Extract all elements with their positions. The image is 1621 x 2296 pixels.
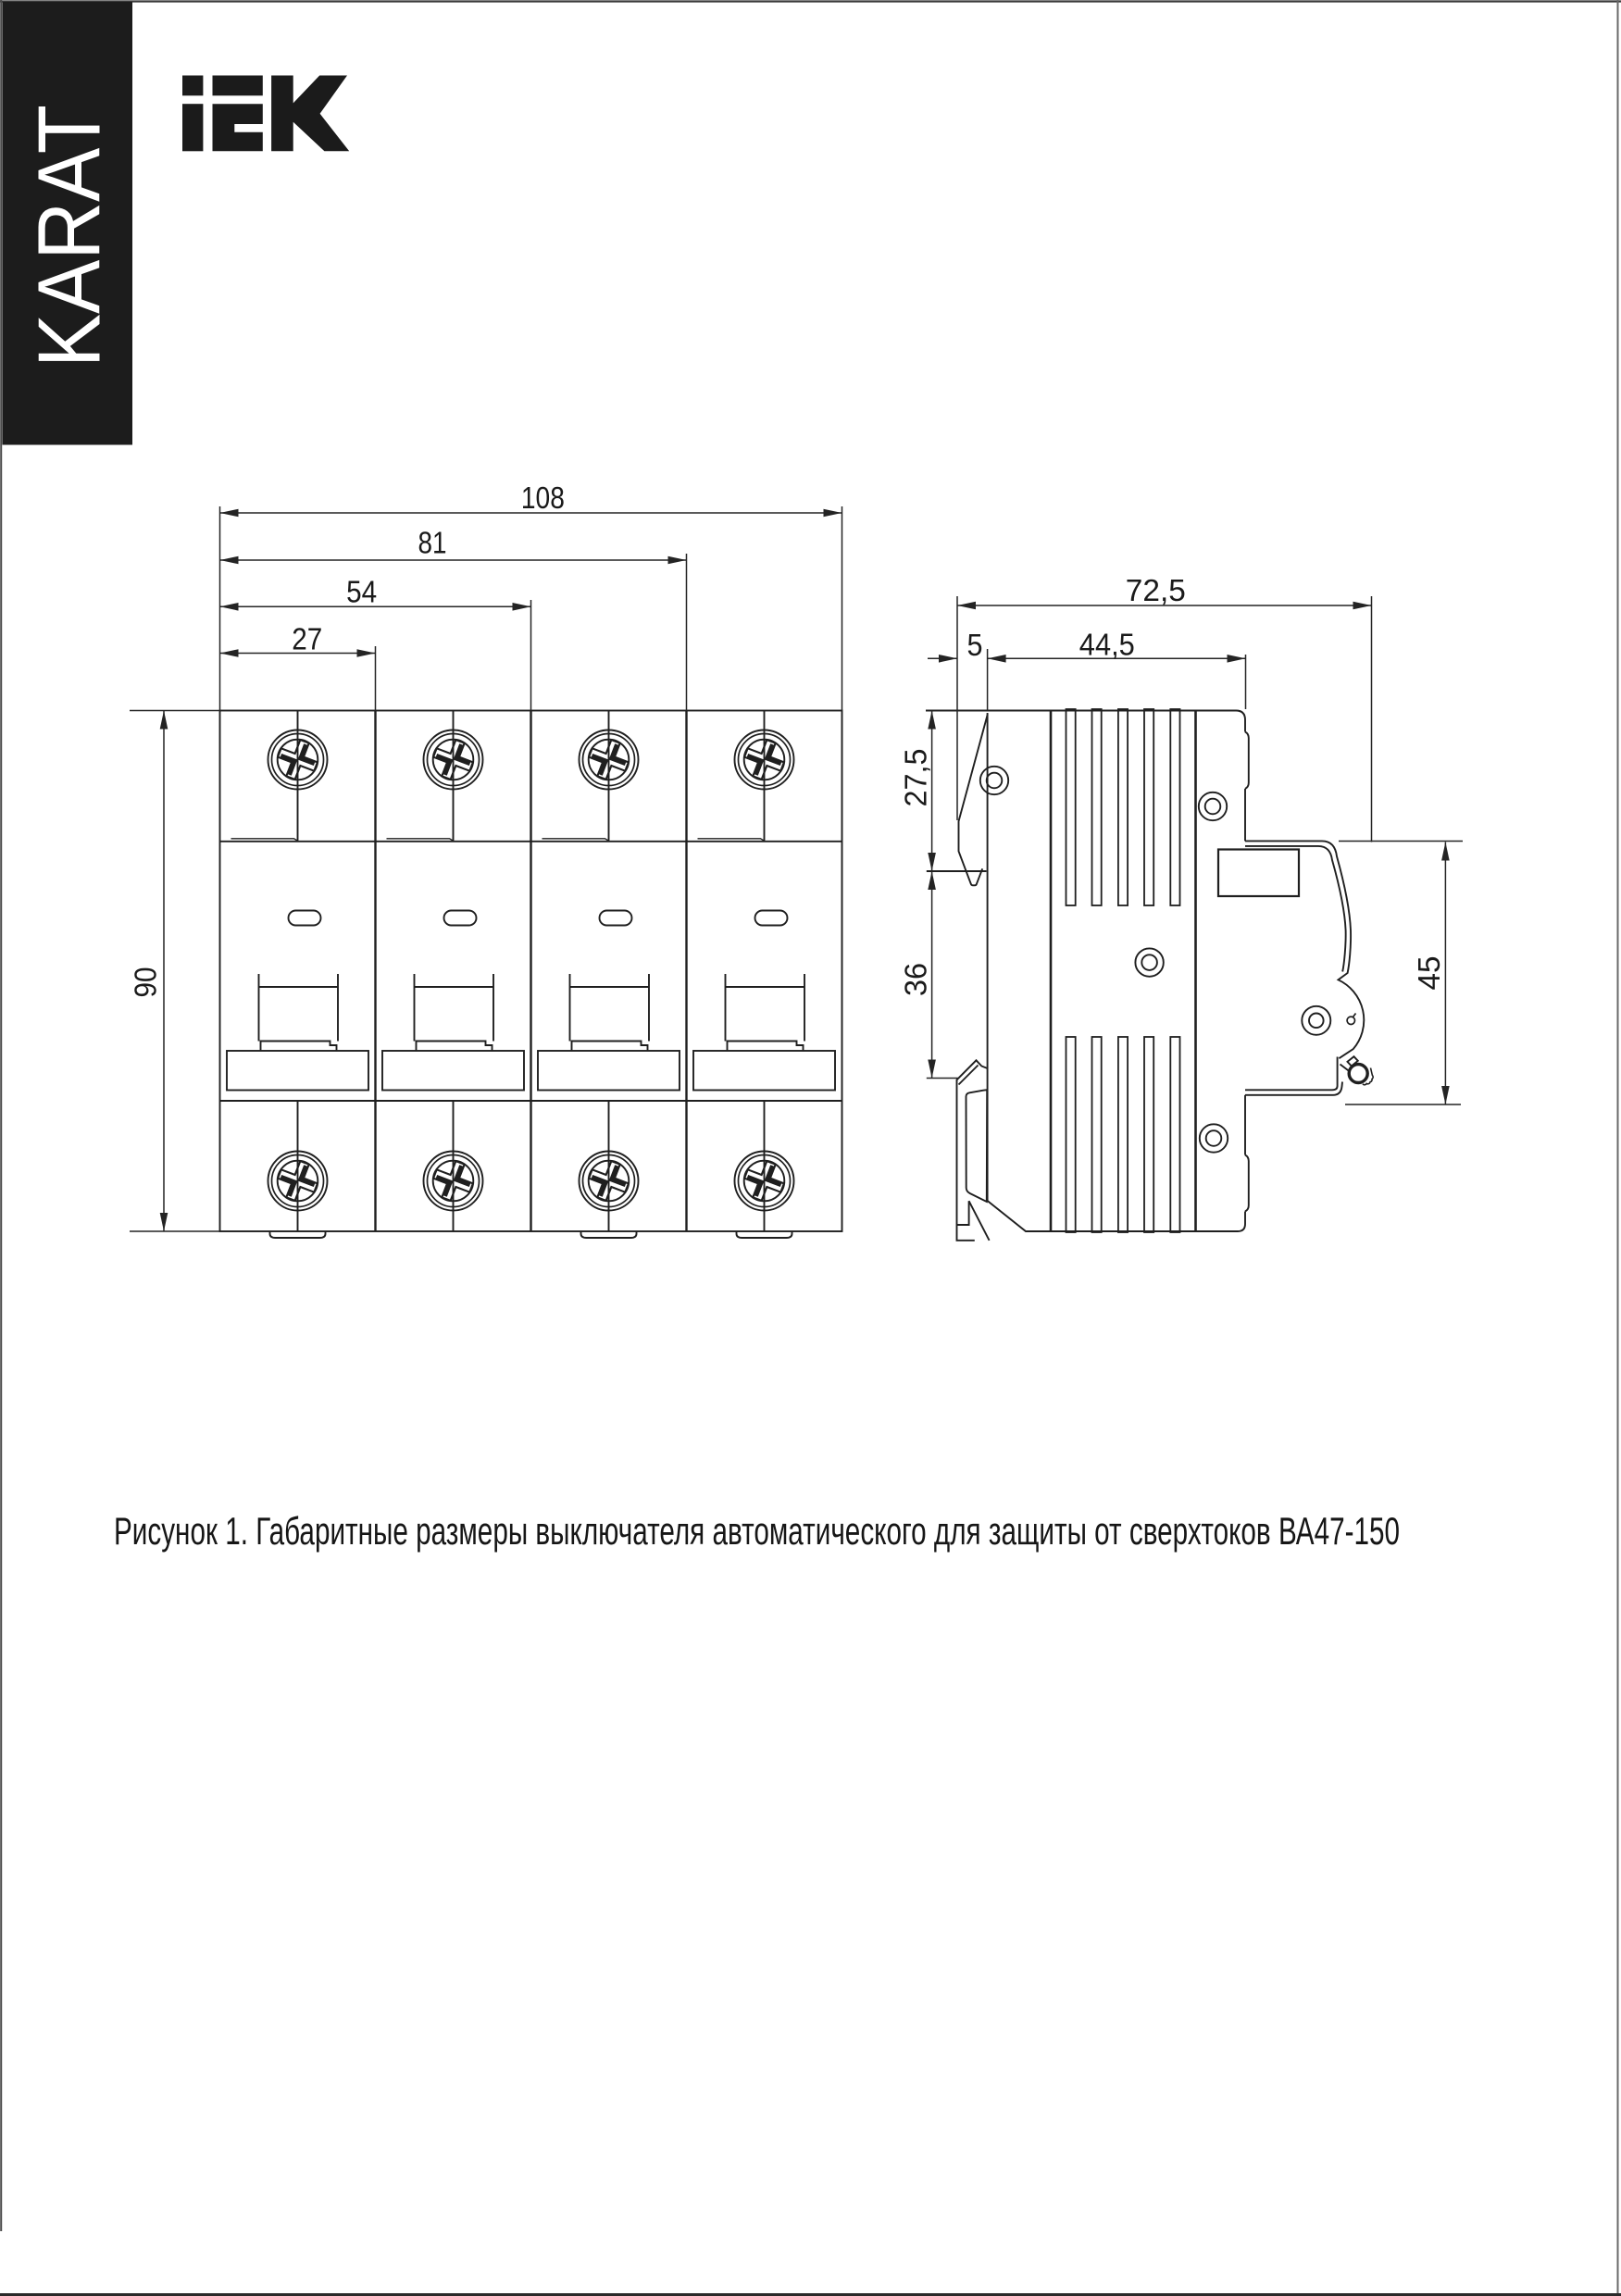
svg-text:81: 81: [418, 526, 447, 560]
svg-text:108: 108: [521, 480, 565, 515]
svg-text:45: 45: [1412, 956, 1446, 991]
svg-text:KARAT: KARAT: [20, 105, 119, 368]
svg-text:72,5: 72,5: [1126, 573, 1186, 607]
svg-text:27,5: 27,5: [899, 749, 933, 807]
svg-text:5: 5: [967, 628, 983, 662]
svg-text:36: 36: [899, 963, 933, 996]
svg-text:27: 27: [292, 622, 322, 656]
svg-text:44,5: 44,5: [1079, 628, 1135, 662]
svg-text:54: 54: [346, 575, 377, 609]
svg-text:90: 90: [129, 967, 163, 998]
svg-text:Рисунок 1. Габаритные размеры: Рисунок 1. Габаритные размеры выключател…: [114, 1509, 1400, 1553]
